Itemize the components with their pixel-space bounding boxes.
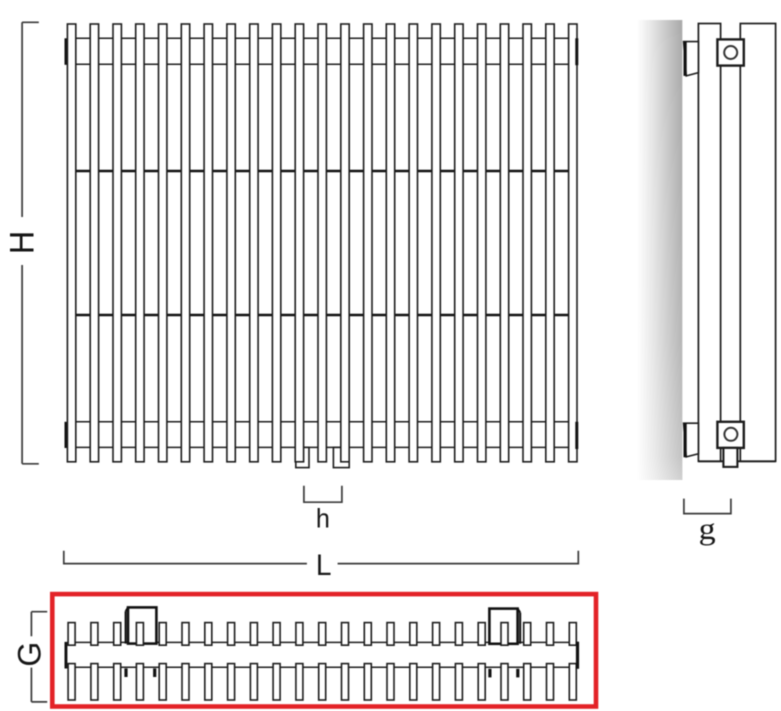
- svg-text:G: G: [12, 642, 48, 667]
- svg-text:L: L: [316, 549, 332, 582]
- svg-text:g: g: [699, 512, 716, 546]
- svg-text:h: h: [316, 505, 330, 534]
- svg-text:H: H: [4, 231, 42, 254]
